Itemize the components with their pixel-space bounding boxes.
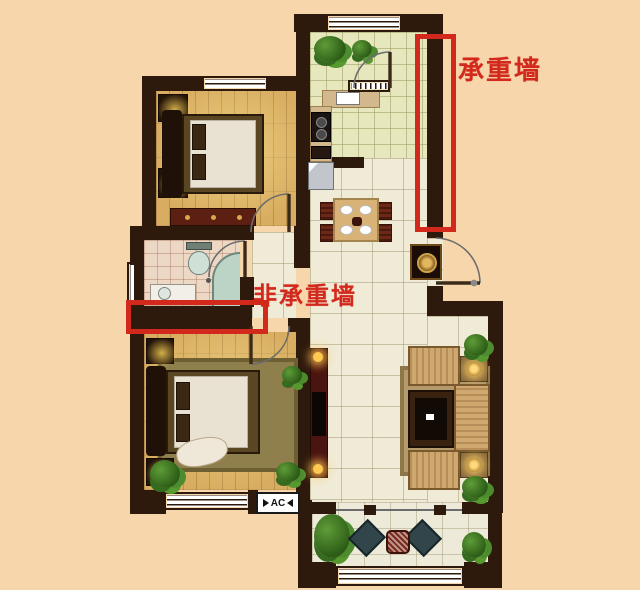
sliding-door-stop	[364, 505, 376, 515]
entry-door-arc	[436, 238, 480, 283]
bedroom-1-door-arc	[251, 194, 289, 232]
non-load-bearing-wall-highlight	[126, 300, 268, 334]
floor-plan: AC	[0, 0, 640, 590]
non-load-bearing-wall-label: 非承重墙	[253, 276, 357, 311]
sliding-door-stop	[434, 505, 446, 515]
bathroom-door-arc	[209, 241, 245, 277]
kitchen-door-arc	[354, 52, 390, 88]
door-handle	[471, 280, 478, 287]
load-bearing-wall-label: 承重墙	[458, 50, 542, 87]
load-bearing-wall-highlight	[415, 34, 456, 232]
